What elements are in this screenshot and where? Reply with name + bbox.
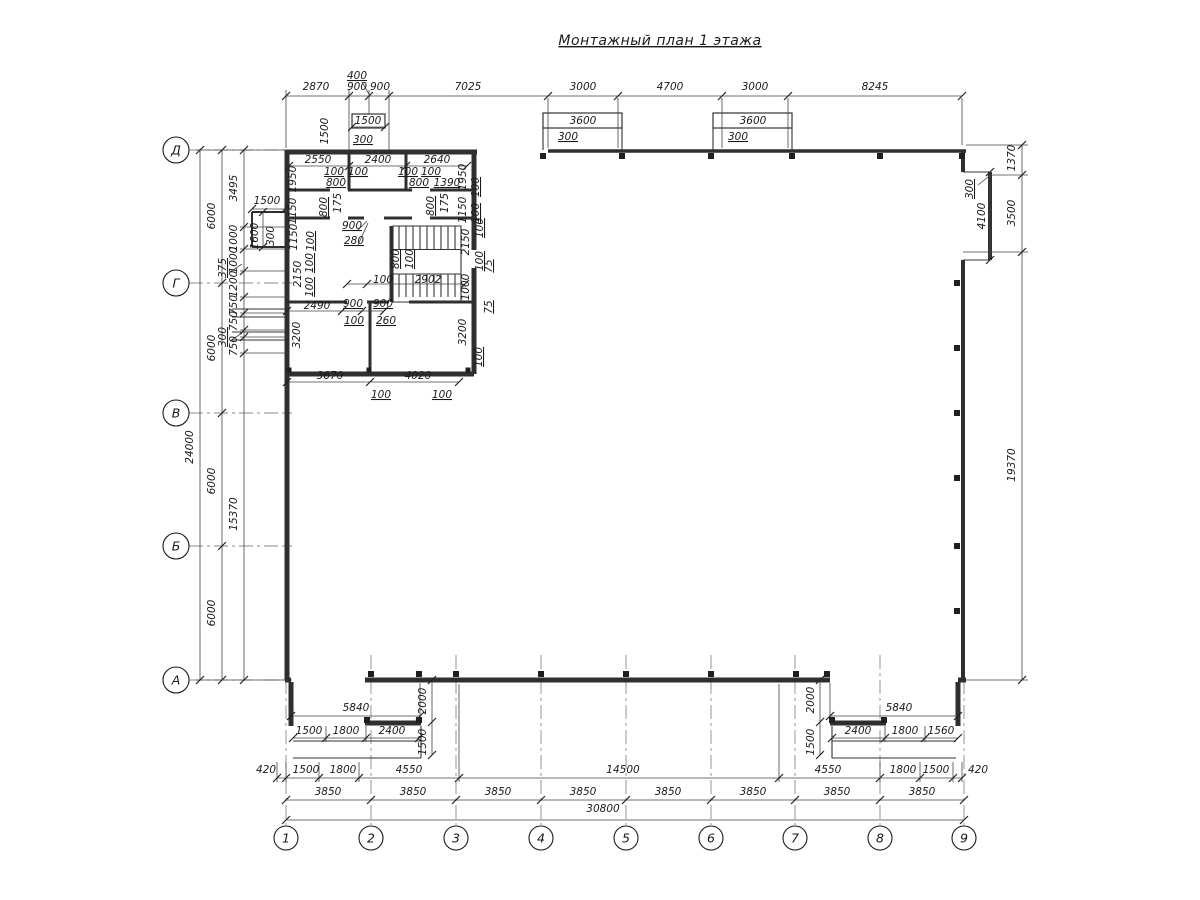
dim-label: 3500 <box>1006 199 1018 226</box>
dim-label: 1560 <box>928 725 955 737</box>
dim-label: 1600 <box>249 222 261 249</box>
dim-label: 1150 <box>288 223 300 250</box>
dim-label: 100 <box>432 389 452 401</box>
floor-plan-drawing: Монтажный план 1 этажа 28709009007025300… <box>0 0 1200 900</box>
dim-label: 6000 <box>206 467 218 494</box>
dim-label: 750 <box>228 336 240 356</box>
row-axis-label: Г <box>173 276 181 291</box>
dim-label: 1370 <box>1006 144 1018 171</box>
dim-label: 1390 <box>434 177 461 189</box>
dim-label: 1800 <box>890 764 917 776</box>
dim-label: 900 <box>370 81 390 93</box>
dim-label: 100 <box>344 315 364 327</box>
dim-label: 15370 <box>228 497 240 531</box>
dim-label: 2490 <box>304 300 331 312</box>
dim-label: 3200 <box>457 318 469 345</box>
col-axis-label: 7 <box>791 831 799 846</box>
dim-label: 100 <box>473 347 485 367</box>
dim-label: 800 <box>425 196 437 216</box>
dim-label: 1800 <box>330 764 357 776</box>
dim-label: 175 <box>439 193 451 213</box>
dim-label: 3600 <box>570 115 597 127</box>
dim-label: 100 <box>373 274 393 286</box>
dim-label: 3000 <box>742 81 769 93</box>
dim-label: 4550 <box>815 764 842 776</box>
dim-label: 420 <box>968 764 988 776</box>
col-axis-label: 3 <box>452 831 460 846</box>
dim-label: 6000 <box>206 202 218 229</box>
dim-label: 3000 <box>570 81 597 93</box>
dim-label: 5840 <box>343 702 370 714</box>
dim-label: 2000 <box>417 687 429 714</box>
dim-label: 3200 <box>291 321 303 348</box>
dim-label: 1800 <box>333 725 360 737</box>
dim-label: 375 <box>217 258 229 278</box>
dim-label: 300 <box>558 131 578 143</box>
dim-label: 260 <box>376 315 396 327</box>
dim-label: 100 <box>348 166 368 178</box>
dim-label: 2870 <box>303 81 330 93</box>
dim-label: 800 <box>390 249 402 269</box>
dim-label: 3670 <box>317 370 344 382</box>
dim-label: 100 <box>470 177 482 197</box>
dim-label: 1150 <box>287 197 299 224</box>
dim-label: 2400 <box>845 725 872 737</box>
drawing-title: Монтажный план 1 этажа <box>558 33 761 49</box>
dim-label: 3850 <box>824 786 851 798</box>
dim-label: 300 <box>353 134 373 146</box>
dim-label: 1000 <box>460 273 472 300</box>
dim-label: 8245 <box>862 81 889 93</box>
dim-label: 100 <box>404 249 416 269</box>
row-axis-label: А <box>171 673 181 688</box>
dim-label: 1500 <box>417 728 429 755</box>
col-axis-label: 2 <box>367 831 375 846</box>
dim-label: 280 <box>344 235 364 247</box>
dim-label: 420 <box>256 764 276 776</box>
dim-label: 2550 <box>305 154 332 166</box>
dim-label: 900 <box>347 81 367 93</box>
dim-label: 30800 <box>586 803 620 815</box>
dim-label: 4100 <box>976 202 988 229</box>
dim-label: 1200 <box>228 270 240 297</box>
dim-label: 2150 <box>460 228 472 255</box>
dim-label: 2902 <box>415 274 442 286</box>
dim-label: 300 <box>728 131 748 143</box>
dim-label: 4700 <box>657 81 684 93</box>
dim-label: 100 <box>304 253 316 273</box>
dim-label: 3600 <box>740 115 767 127</box>
dim-label: 1800 <box>892 725 919 737</box>
col-axis-label: 1 <box>282 831 290 846</box>
dim-label: 7025 <box>455 81 482 93</box>
dim-label: 800 <box>318 197 330 217</box>
dim-label: 900 <box>373 298 393 310</box>
dim-label: 1500 <box>805 728 817 755</box>
dim-label: 1500 <box>293 764 320 776</box>
dim-label: 3850 <box>570 786 597 798</box>
dim-label: 1000 <box>228 246 240 273</box>
dim-label: 1500 <box>355 115 382 127</box>
dim-label: 3850 <box>400 786 427 798</box>
dim-label: 175 <box>332 193 344 213</box>
dim-label: 1500 <box>254 195 281 207</box>
dim-label: 2400 <box>365 154 392 166</box>
dim-label: 3495 <box>228 174 240 201</box>
dim-label: 800 <box>326 177 346 189</box>
dim-label: 1500 <box>923 764 950 776</box>
dim-label: 100 <box>304 277 316 297</box>
dim-label: 1150 <box>457 196 469 223</box>
dim-label: 1950 <box>287 165 299 192</box>
dim-label: 900 <box>342 220 362 232</box>
row-axis-label: Д <box>170 143 181 158</box>
dim-label: 3850 <box>485 786 512 798</box>
dim-label: 100 <box>305 231 317 251</box>
dim-label: 300 <box>265 226 277 246</box>
dim-label: 24000 <box>184 430 196 464</box>
dim-label: 3850 <box>655 786 682 798</box>
dim-label: 3850 <box>909 786 936 798</box>
dim-label: 100 <box>371 389 391 401</box>
dim-label: 4550 <box>396 764 423 776</box>
dim-label: 750 <box>228 311 240 331</box>
dim-label: 75 <box>483 259 495 273</box>
row-axis-label: В <box>172 406 181 421</box>
col-axis-label: 8 <box>876 831 884 846</box>
col-axis-label: 6 <box>707 831 715 846</box>
dim-label: 800 <box>409 177 429 189</box>
dim-label: 100 <box>474 218 486 238</box>
dim-label: 14500 <box>606 764 640 776</box>
dim-label: 6000 <box>206 599 218 626</box>
col-axis-label: 9 <box>960 831 968 846</box>
dim-label: 400 <box>347 70 367 82</box>
col-axis-label: 5 <box>622 831 630 846</box>
dim-label: 2400 <box>379 725 406 737</box>
dim-label: 2000 <box>805 686 817 713</box>
paper-background <box>0 0 1200 900</box>
dim-label: 75 <box>483 300 495 314</box>
dim-label: 3850 <box>740 786 767 798</box>
row-axis-label: Б <box>172 539 181 554</box>
dim-label: 2640 <box>424 154 451 166</box>
dim-label: 300 <box>964 179 976 199</box>
dim-label: 1500 <box>319 117 331 144</box>
dim-label: 2150 <box>292 260 304 287</box>
dim-label: 5840 <box>886 702 913 714</box>
dim-label: 1500 <box>296 725 323 737</box>
col-axis-label: 4 <box>537 831 545 846</box>
dim-label: 19370 <box>1006 448 1018 482</box>
dim-label: 3850 <box>315 786 342 798</box>
dim-label: 900 <box>343 298 363 310</box>
dim-label: 4020 <box>405 370 432 382</box>
